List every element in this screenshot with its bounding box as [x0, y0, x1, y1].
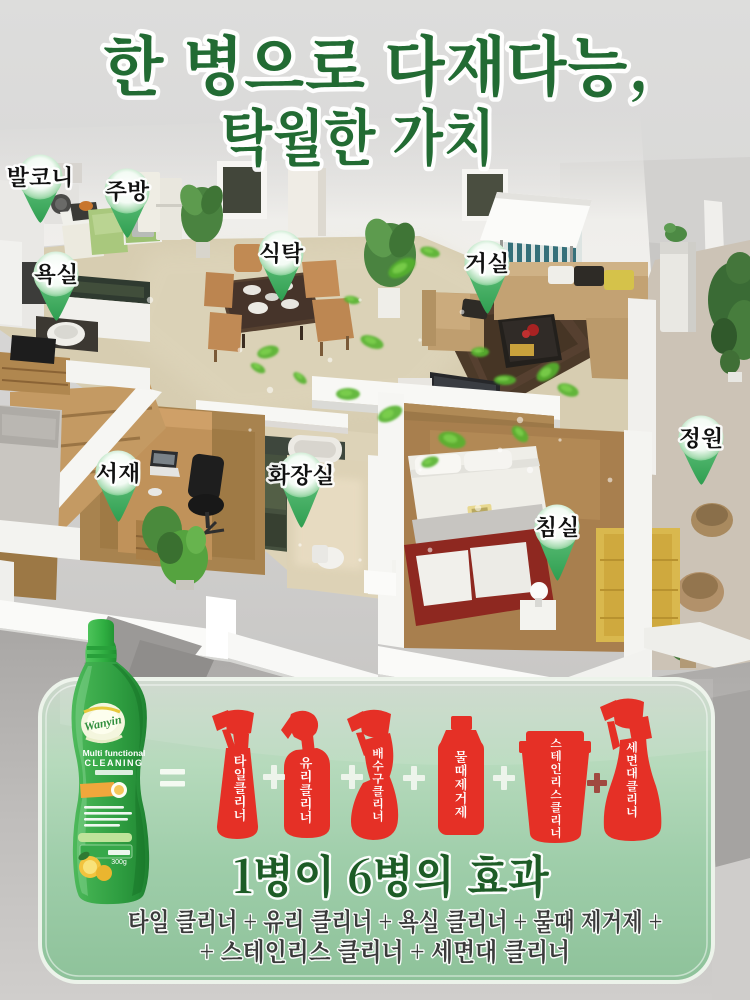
svg-text:300g: 300g	[111, 859, 127, 866]
svg-text:Multi functional: Multi functional	[83, 748, 146, 758]
svg-text:CLEANING: CLEANING	[85, 758, 144, 768]
